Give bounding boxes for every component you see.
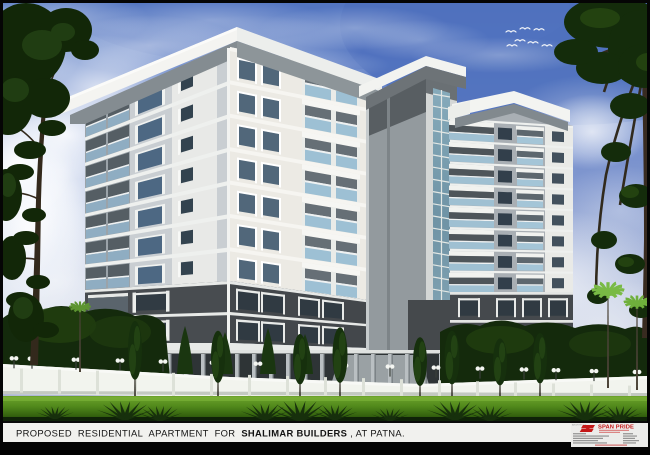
svg-text:PROPOSED RESIDENTIAL APARTME: PROPOSED RESIDENTIAL APARTMENT FOR SHALI… bbox=[16, 428, 405, 439]
svg-text:SPAN PRIDE: SPAN PRIDE bbox=[598, 425, 634, 431]
